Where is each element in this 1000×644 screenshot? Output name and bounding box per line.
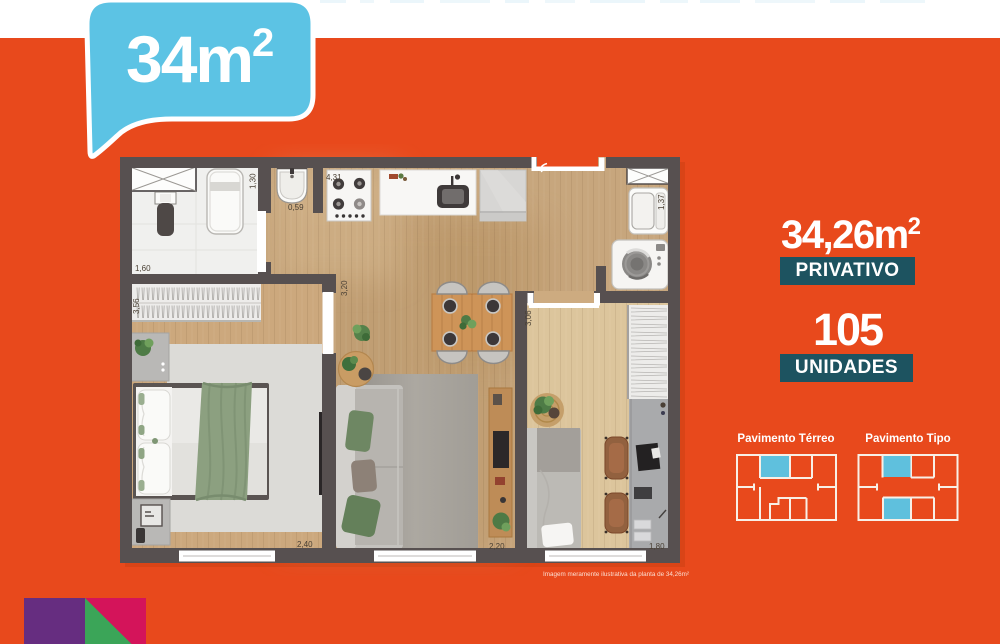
svg-text:4,31: 4,31 [326,173,342,182]
svg-text:2,40: 2,40 [297,540,313,549]
svg-text:3,06: 3,06 [524,310,533,326]
svg-text:1,37: 1,37 [657,194,666,210]
svg-text:34m: 34m [126,22,252,96]
svg-text:1,30: 1,30 [249,173,258,189]
svg-text:0,59: 0,59 [288,203,304,212]
svg-text:2,20: 2,20 [489,542,505,551]
svg-text:1,80: 1,80 [649,542,665,551]
svg-text:1,60: 1,60 [135,264,151,273]
svg-text:3,20: 3,20 [340,280,349,296]
svg-text:3,56: 3,56 [132,298,141,314]
svg-text:2: 2 [252,21,274,65]
